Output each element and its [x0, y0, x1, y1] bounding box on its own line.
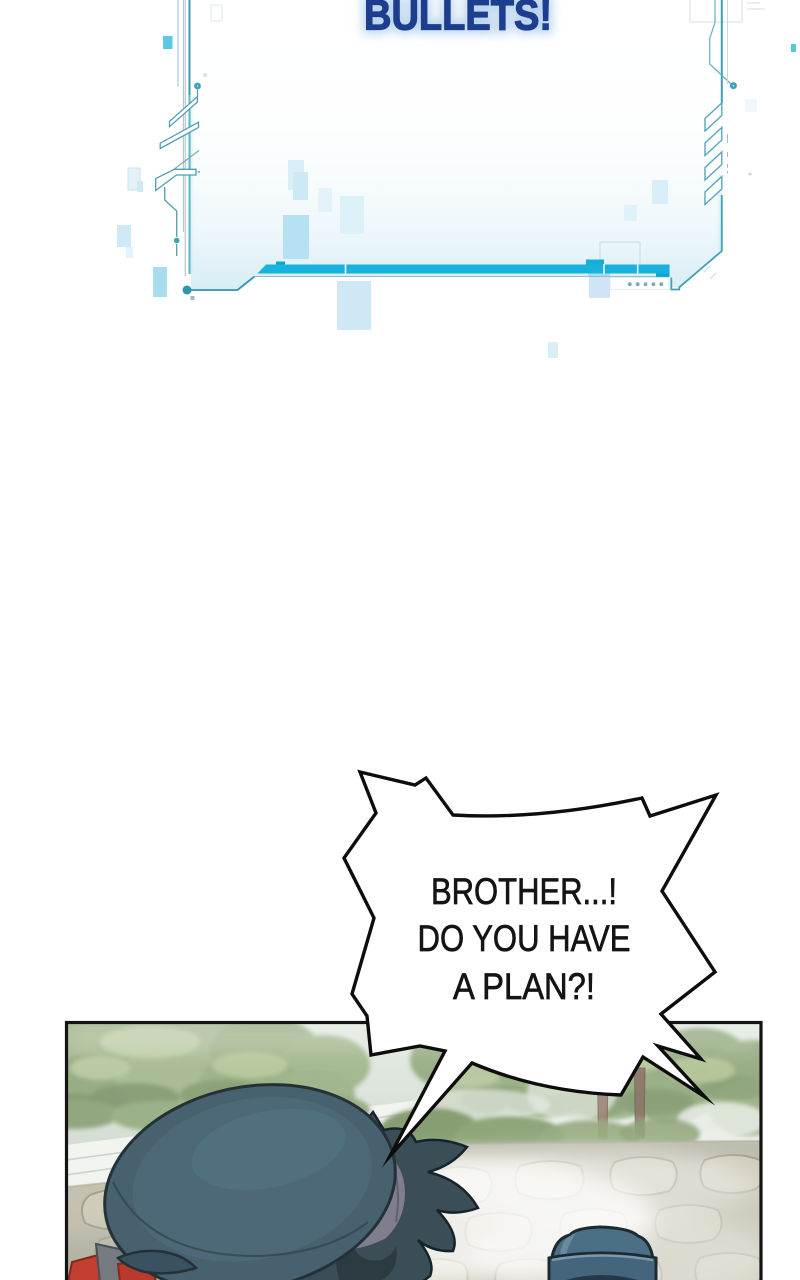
svg-text:BROTHER...!: BROTHER...! — [431, 871, 617, 912]
svg-text:DO YOU HAVE: DO YOU HAVE — [418, 918, 631, 959]
svg-text:BULLETS!: BULLETS! — [364, 0, 552, 40]
svg-text:A PLAN?!: A PLAN?! — [453, 966, 595, 1007]
